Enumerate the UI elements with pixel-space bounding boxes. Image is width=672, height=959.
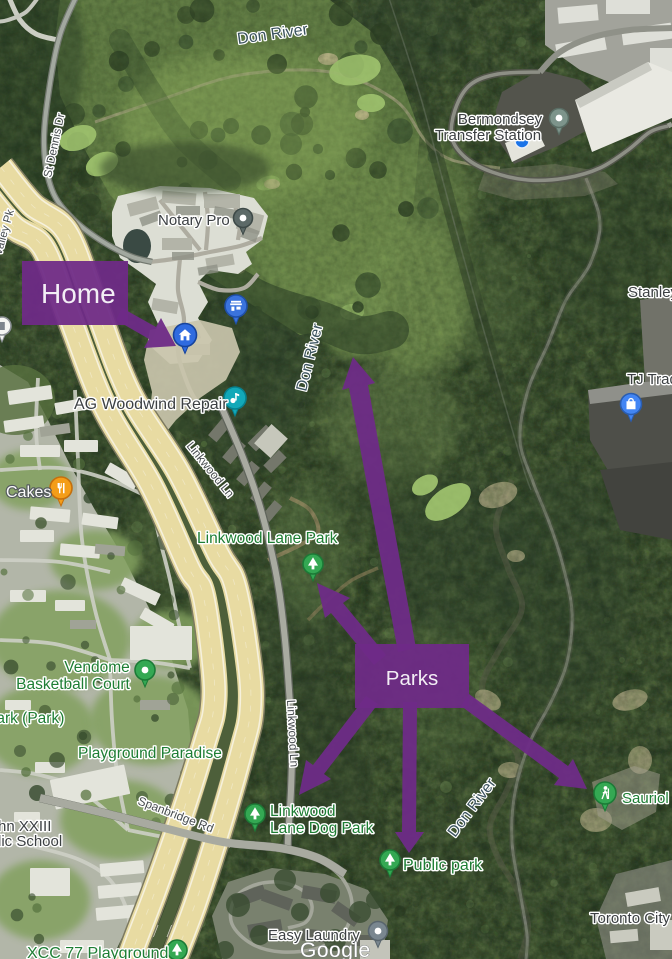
svg-text:Parks: Parks [386, 667, 438, 690]
svg-text:Notary Pro: Notary Pro [158, 212, 230, 229]
svg-text:Lane Dog Park: Lane Dog Park [270, 820, 374, 837]
svg-text:Sauriol C: Sauriol C [622, 790, 672, 807]
svg-text:Public park: Public park [403, 857, 483, 874]
svg-text:Google: Google [300, 939, 371, 959]
svg-text:XCC 77 Playground: XCC 77 Playground [27, 945, 168, 959]
svg-text:Cakes: Cakes [6, 484, 51, 501]
svg-text:Home: Home [41, 278, 116, 309]
svg-text:Linkwood: Linkwood [270, 803, 336, 820]
svg-text:Transfer Station: Transfer Station [435, 127, 541, 144]
svg-text:Bermondsey: Bermondsey [458, 111, 543, 128]
svg-text:Playground Paradise: Playground Paradise [78, 745, 222, 762]
svg-text:AG Woodwind Repair: AG Woodwind Repair [74, 396, 228, 413]
svg-text:Linkwood Lane Park: Linkwood Lane Park [197, 530, 338, 547]
svg-text:TJ Trade: TJ Trade [627, 371, 672, 388]
svg-text:Park (Park): Park (Park) [0, 710, 64, 727]
svg-text:lic School: lic School [0, 833, 62, 850]
svg-text:Vendome: Vendome [64, 659, 130, 676]
svg-text:Stanley: Stanley [628, 284, 672, 301]
svg-text:Toronto City: Toronto City [590, 910, 671, 927]
svg-text:Basketball Court: Basketball Court [16, 676, 130, 693]
